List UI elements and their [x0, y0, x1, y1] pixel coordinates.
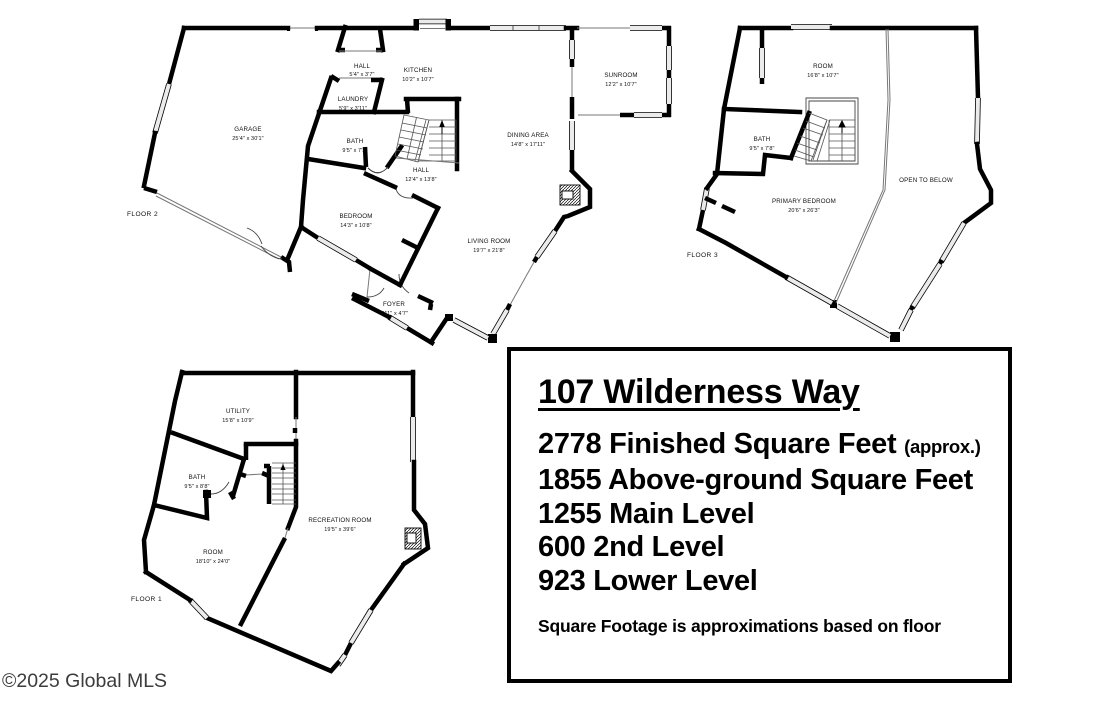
svg-text:7'11" x 4'7": 7'11" x 4'7": [380, 311, 408, 317]
svg-text:ROOM: ROOM: [203, 549, 223, 556]
svg-text:18'10" x 24'0": 18'10" x 24'0": [196, 559, 231, 565]
svg-text:9'5" x 7'8": 9'5" x 7'8": [749, 146, 774, 152]
svg-text:14'8" x 17'11": 14'8" x 17'11": [511, 142, 545, 148]
svg-text:RECREATION ROOM: RECREATION ROOM: [308, 517, 371, 524]
svg-text:UTILITY: UTILITY: [226, 408, 250, 415]
svg-text:BEDROOM: BEDROOM: [339, 213, 372, 220]
svg-text:BATH: BATH: [347, 138, 364, 145]
svg-text:10'2" x 10'7": 10'2" x 10'7": [402, 77, 433, 83]
svg-text:LAUNDRY: LAUNDRY: [338, 96, 369, 103]
svg-text:KITCHEN: KITCHEN: [404, 67, 432, 74]
svg-text:PRIMARY BEDROOM: PRIMARY BEDROOM: [772, 198, 836, 205]
svg-text:9'5" x 8'8": 9'5" x 8'8": [184, 484, 209, 490]
svg-text:19'7" x 21'8": 19'7" x 21'8": [473, 248, 504, 254]
svg-text:9'5" x 7'2": 9'5" x 7'2": [342, 148, 367, 154]
svg-text:15'8" x 10'9": 15'8" x 10'9": [222, 418, 253, 424]
svg-text:12'4" x 13'8": 12'4" x 13'8": [405, 177, 436, 183]
svg-text:5'4" x 3'7": 5'4" x 3'7": [349, 72, 374, 78]
svg-text:HALL: HALL: [354, 63, 370, 70]
svg-text:BATH: BATH: [754, 136, 771, 143]
svg-text:GARAGE: GARAGE: [234, 126, 261, 133]
svg-text:BATH: BATH: [189, 474, 206, 481]
svg-text:20'6" x 26'3": 20'6" x 26'3": [788, 208, 819, 214]
svg-text:LIVING ROOM: LIVING ROOM: [468, 238, 511, 245]
svg-text:DINING AREA: DINING AREA: [507, 132, 549, 139]
svg-text:FLOOR 3: FLOOR 3: [687, 252, 718, 259]
svg-text:16'8" x 10'7": 16'8" x 10'7": [807, 73, 838, 79]
svg-text:OPEN TO BELOW: OPEN TO BELOW: [899, 177, 953, 184]
svg-text:SUNROOM: SUNROOM: [604, 72, 637, 79]
svg-text:ROOM: ROOM: [813, 63, 833, 70]
svg-text:19'5" x 39'6": 19'5" x 39'6": [324, 527, 355, 533]
svg-text:HALL: HALL: [413, 167, 429, 174]
svg-text:FOYER: FOYER: [383, 301, 405, 308]
svg-text:25'4" x 30'1": 25'4" x 30'1": [232, 136, 263, 142]
svg-text:14'3" x 10'8": 14'3" x 10'8": [340, 223, 371, 229]
svg-text:5'9" x 3'11": 5'9" x 3'11": [339, 106, 367, 112]
svg-text:FLOOR 1: FLOOR 1: [131, 596, 162, 603]
svg-text:12'2" x 10'7": 12'2" x 10'7": [605, 82, 636, 88]
svg-text:FLOOR 2: FLOOR 2: [127, 211, 158, 218]
